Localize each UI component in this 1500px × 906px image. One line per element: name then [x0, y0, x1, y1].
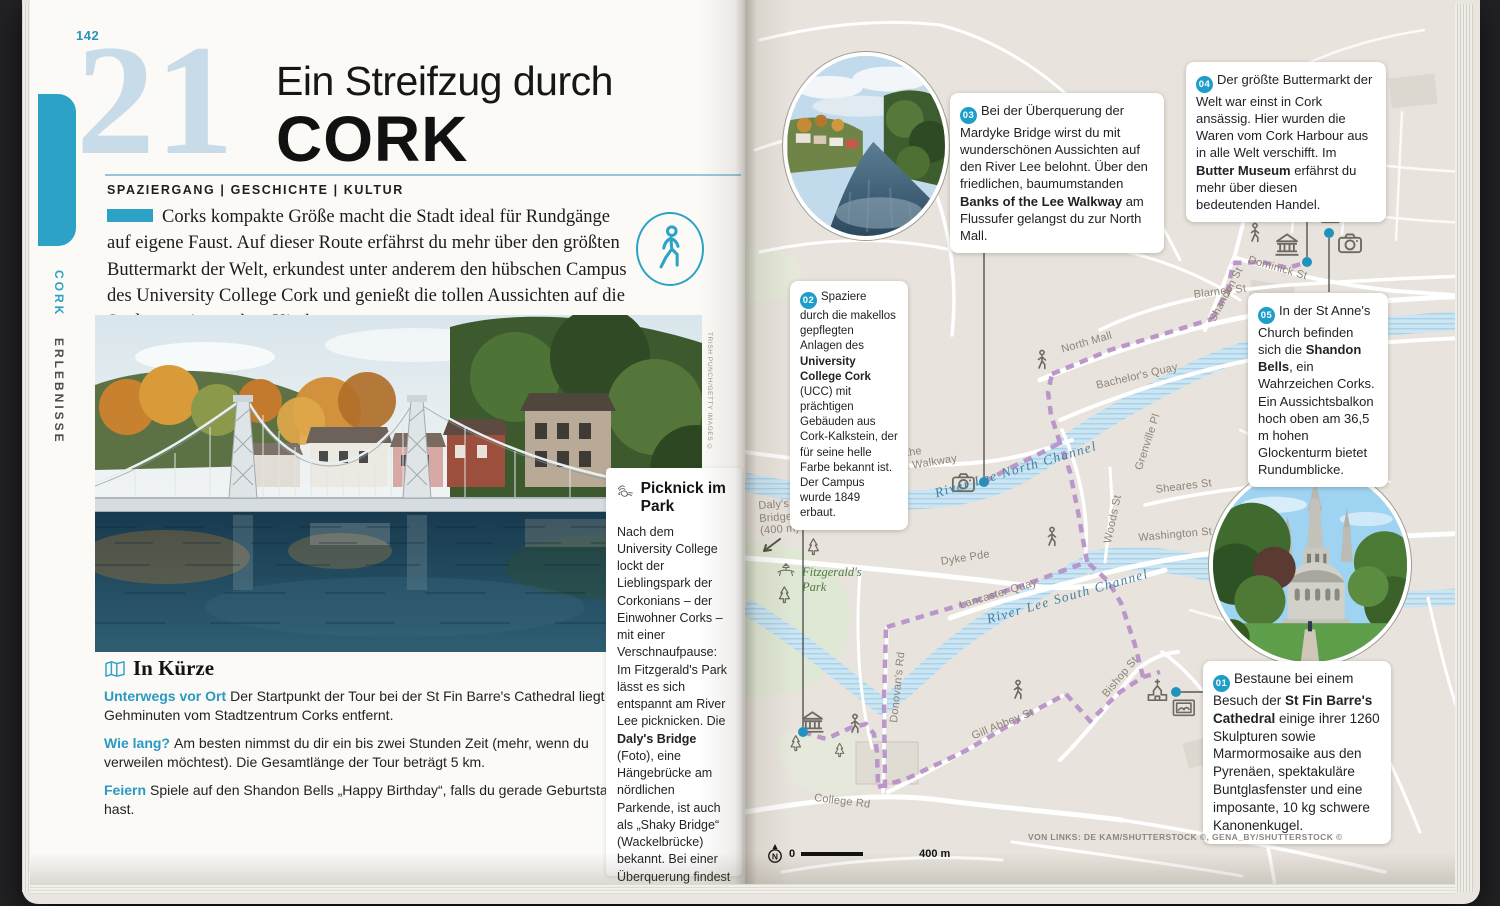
item-label: Feiern: [104, 782, 146, 798]
page-title-line1: Ein Streifzug durch: [276, 58, 613, 105]
page-title-line2: CORK: [276, 102, 468, 176]
stop-number-badge: 03: [960, 107, 977, 124]
in-kuerze-section: In Kürze Unterwegs vor OrtDer Startpunkt…: [104, 656, 634, 828]
title-divider: [105, 174, 741, 176]
st-fin-barres-inset-photo: [1213, 468, 1407, 662]
callout-02-ucc: 02Spaziere durch die makellos gepflegten…: [790, 281, 908, 530]
callout-03-mardyke-bridge: 03Bei der Überquerung der Mardyke Bridge…: [950, 93, 1164, 253]
stop-number-badge: 04: [1196, 76, 1213, 93]
item-label: Wie lang?: [104, 735, 170, 751]
scale-zero: 0: [789, 848, 795, 860]
stop-number-badge: 01: [1213, 675, 1230, 692]
scale-line: [801, 852, 863, 856]
page-stack-right: [1455, 4, 1473, 892]
compass-north-icon: N: [767, 843, 783, 865]
callout-05-shandon-bells: 05In der St Anne's Church befinden sich …: [1248, 293, 1388, 487]
callout-text: Bei der Überquerung der Mardyke Bridge w…: [960, 103, 1148, 243]
picnic-icon: [617, 480, 635, 502]
rail-category-label: ERLEBNISSE: [52, 338, 66, 445]
book-spread: 142 CORK ERLEBNISSE 21 Ein Streifzug dur…: [0, 0, 1500, 906]
in-kuerze-item: Unterwegs vor OrtDer Startpunkt der Tour…: [104, 687, 634, 725]
side-rail: CORK ERLEBNISSE: [52, 270, 66, 444]
left-page: 142 CORK ERLEBNISSE 21 Ein Streifzug dur…: [30, 0, 745, 884]
sidebar-heading: Picknick im Park: [617, 480, 731, 516]
item-label: Unterwegs vor Ort: [104, 688, 226, 704]
in-kuerze-item: Wie lang?Am besten nimmst du dir ein bis…: [104, 734, 634, 772]
map-icon: [104, 660, 126, 678]
stop-number-badge: 02: [800, 292, 817, 309]
callout-text: In der St Anne's Church befinden sich di…: [1258, 303, 1375, 477]
map-scale-bar: N 0 400 m: [767, 843, 950, 865]
intro-text: Corks kompakte Größe macht die Stadt ide…: [107, 207, 627, 332]
chapter-edge-tab: [38, 94, 76, 246]
kicker-tags: SPAZIERGANG | GESCHICHTE | KULTUR: [107, 183, 404, 197]
intro-lead-bar: [107, 209, 153, 222]
map-photo-credit: VON LINKS: DE KAM/SHUTTERSTOCK ©, GENA_B…: [1028, 832, 1438, 842]
in-kuerze-item: FeiernSpiele auf den Shandon Bells „Happ…: [104, 781, 634, 819]
item-text: Spiele auf den Shandon Bells „Happy Birt…: [104, 782, 615, 817]
callout-text: Spaziere durch die makellos gepflegten A…: [800, 291, 898, 519]
sidebar-body: Nach dem University College lockt der Li…: [617, 524, 731, 884]
park-label: Fitzgerald's Park: [802, 565, 862, 595]
walking-tour-icon: [636, 212, 704, 286]
scale-distance: 400 m: [919, 848, 950, 860]
item-text: Am besten nimmst du dir ein bis zwei Stu…: [104, 735, 589, 770]
picknick-sidebar: Picknick im Park Nach dem University Col…: [606, 468, 742, 876]
callout-01-cathedral: 01Bestaune bei einem Besuch der St Fin B…: [1203, 661, 1391, 844]
stop-number-badge: 05: [1258, 307, 1275, 324]
in-kuerze-heading: In Kürze: [104, 656, 634, 681]
in-kuerze-title: In Kürze: [133, 656, 214, 681]
right-page-map: Blarney St Shandon St Dominick St North …: [745, 0, 1455, 884]
sidebar-title: Picknick im Park: [641, 480, 731, 516]
callout-04-butter-museum: 04Der größte Buttermarkt der Welt war ei…: [1186, 62, 1386, 222]
rail-section-label: CORK: [52, 270, 66, 317]
photo-credit: TRISH PUNCH/GETTY IMAGES ©: [706, 332, 713, 451]
svg-text:N: N: [772, 852, 778, 862]
callout-text: Bestaune bei einem Besuch der St Fin Bar…: [1213, 671, 1380, 833]
river-lee-inset-photo: [787, 56, 945, 236]
chapter-number: 21: [76, 22, 234, 180]
callout-text: Der größte Buttermarkt der Welt war eins…: [1196, 72, 1372, 212]
